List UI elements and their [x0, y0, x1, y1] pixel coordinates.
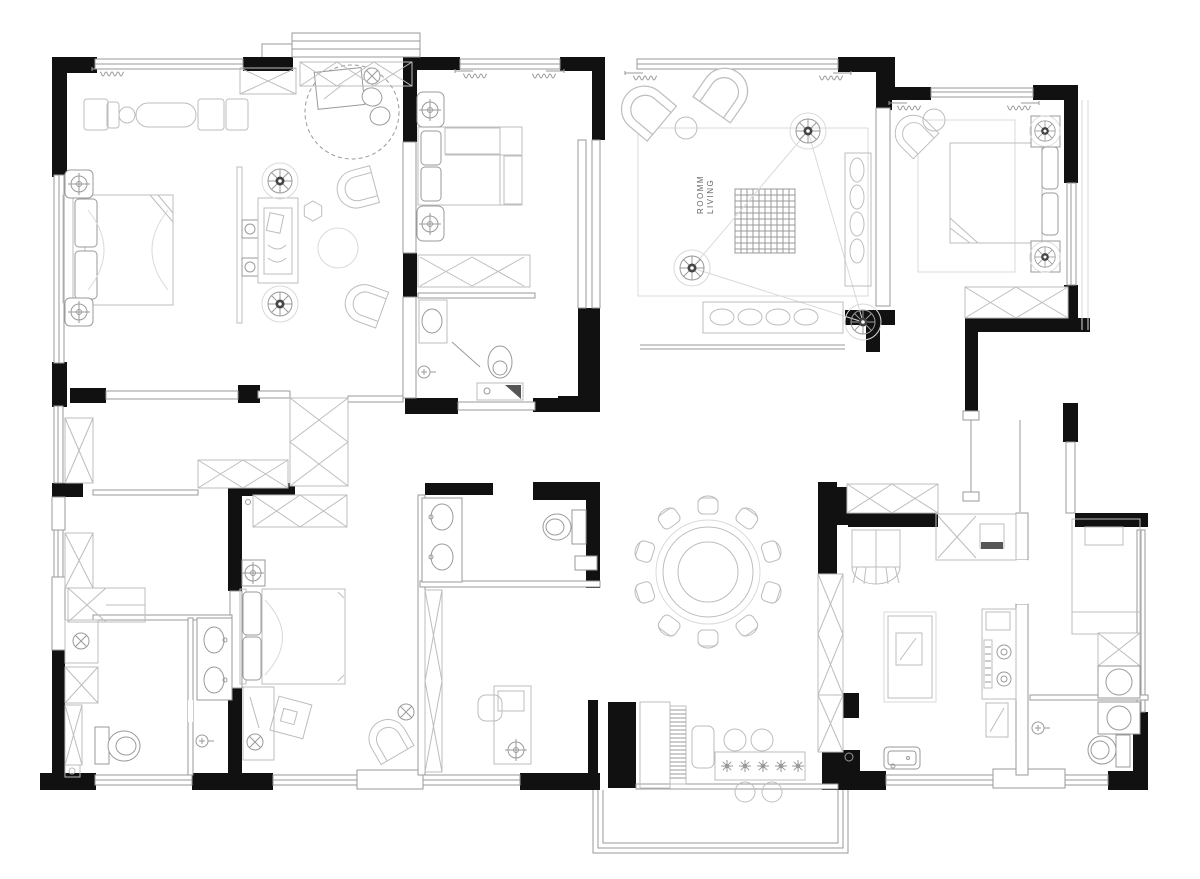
closet-left-upper — [65, 418, 93, 483]
vanity-double — [422, 498, 462, 582]
room-dining — [633, 496, 843, 752]
cabinet-x — [1098, 633, 1140, 666]
wall-bath-left — [188, 618, 193, 775]
room-bedroom4 — [240, 495, 414, 764]
window-bedroom2-top — [460, 59, 560, 69]
wardrobe-strip — [425, 590, 442, 772]
dining-chairs — [633, 496, 784, 648]
room-kitchen — [845, 530, 1016, 769]
bay-window — [262, 33, 420, 57]
door-opening-kitchen — [993, 769, 1065, 788]
window-left-corridor-2 — [54, 530, 63, 577]
partition-living-left — [592, 140, 600, 308]
desk — [478, 686, 531, 764]
window-living-top — [637, 59, 838, 69]
curtain-icon — [819, 71, 851, 80]
room-utility — [1032, 519, 1140, 767]
window-bottom-2 — [273, 775, 357, 785]
media-bench — [258, 198, 298, 283]
room-bedroom2 — [417, 69, 564, 400]
armchair — [888, 108, 939, 159]
sofa-right — [845, 153, 871, 286]
bedroom2-bath — [418, 300, 523, 400]
nightstand — [417, 92, 444, 127]
window-bedroom3-right — [1067, 183, 1076, 285]
nightstand — [242, 560, 265, 586]
nightstand — [1030, 116, 1061, 147]
ceiling-fan-icon — [262, 163, 298, 199]
door-band — [458, 402, 535, 410]
nightstand — [417, 206, 444, 241]
wardrobe — [965, 287, 1068, 318]
curtain-icon — [455, 69, 487, 78]
window-master-top — [95, 59, 243, 69]
piano — [640, 702, 714, 788]
ledge-right — [1082, 100, 1088, 330]
curtain-icon — [625, 71, 657, 80]
kitchen-sink — [884, 747, 920, 769]
cabinet-x — [65, 620, 98, 663]
wall-bath2-left — [403, 297, 416, 398]
nightstand — [1030, 241, 1061, 272]
wall-living-bed3 — [876, 108, 890, 306]
partition-living-left — [578, 140, 586, 308]
shower-head-icon — [196, 735, 214, 747]
wall-seg — [52, 497, 65, 530]
room-study — [425, 590, 531, 772]
bedroom4-bed — [240, 589, 345, 684]
single-bed — [1072, 519, 1140, 634]
door-opening-bottom — [357, 770, 423, 789]
wardrobe-column — [290, 398, 348, 486]
massage-lounger — [84, 99, 248, 130]
curtain-icon — [1007, 101, 1039, 110]
wardrobe — [418, 255, 530, 287]
door-band-master — [106, 391, 238, 399]
plant-rack — [715, 729, 805, 802]
wall-seg — [52, 577, 65, 650]
room-bathroom-center — [422, 498, 597, 582]
cabinet-narrow — [65, 705, 82, 765]
niche — [575, 556, 597, 570]
window-bottom-right — [1065, 775, 1108, 785]
master-nightstand-top — [65, 170, 93, 198]
shower-tray — [65, 667, 98, 703]
balcony-railing — [593, 790, 848, 853]
window-bedroom3-top — [931, 88, 1033, 97]
toilet — [543, 510, 586, 544]
sofa-bottom — [703, 302, 843, 333]
stove-counter — [982, 609, 1016, 737]
window-kitchen-bottom — [886, 775, 993, 785]
side-table — [398, 704, 414, 720]
bedroom3-bed — [950, 143, 1058, 243]
window-bottom-1 — [95, 775, 192, 785]
ceiling-fan-icon — [790, 113, 826, 149]
master-bed — [63, 195, 173, 305]
fridge — [852, 530, 900, 584]
dryer — [1098, 702, 1140, 734]
window-bottom-3 — [423, 775, 520, 785]
entry-sidelight — [1066, 442, 1075, 513]
wall-thin — [418, 293, 535, 298]
window-left-corridor-1 — [54, 406, 63, 483]
curtain-icon — [532, 69, 564, 78]
hexagon-table — [304, 201, 321, 221]
bedroom2-bed — [418, 127, 522, 205]
armchair — [333, 166, 380, 213]
toilet — [1088, 735, 1130, 767]
vanity-double — [197, 618, 232, 700]
door-gap-kitchen — [1016, 560, 1028, 604]
curtain-icon — [889, 101, 921, 110]
door-jamb — [963, 492, 979, 501]
room-living: ROOMMLIVING — [612, 59, 881, 340]
ceiling-fan-icon — [262, 286, 298, 322]
room-bedroom3 — [888, 101, 1068, 318]
closet-left-lower — [65, 533, 93, 588]
pouf — [318, 228, 358, 268]
shower-head-icon — [1032, 722, 1050, 734]
living-bottom-line — [640, 345, 845, 349]
desk — [243, 687, 312, 760]
wall-thin — [258, 391, 290, 398]
door-gap — [188, 700, 193, 722]
living-room-label: ROOMMLIVING — [696, 175, 715, 214]
master-nightstand-bottom — [65, 298, 93, 326]
wall-master-right — [403, 142, 416, 253]
coat-cabinet — [847, 484, 938, 513]
floor-plan-svg: ROOMMLIVING — [0, 0, 1200, 879]
room-master-bedroom — [63, 62, 412, 328]
kitchen-right-wall-low — [1016, 604, 1028, 775]
armchair — [340, 279, 389, 328]
ceiling-fan-icon — [674, 250, 710, 286]
dining-table — [656, 520, 760, 624]
toilet — [95, 727, 140, 764]
kitchen-right-wall-up — [1016, 513, 1028, 560]
wardrobe-row — [198, 460, 288, 488]
appliance-counter — [936, 514, 1016, 560]
armchair — [612, 77, 676, 141]
washer — [1098, 666, 1140, 698]
tv-panel — [237, 167, 258, 323]
wall-thin — [348, 396, 403, 402]
tall-cabinet — [818, 574, 843, 752]
room-bathroom-left — [65, 618, 232, 777]
island — [884, 612, 936, 702]
wall-thin — [93, 490, 198, 495]
floor-plan: ROOMMLIVING — [0, 0, 1200, 879]
wardrobe — [246, 495, 348, 527]
door-jamb — [963, 411, 979, 420]
rug-grid — [735, 189, 795, 253]
side-cabinet — [240, 68, 296, 94]
